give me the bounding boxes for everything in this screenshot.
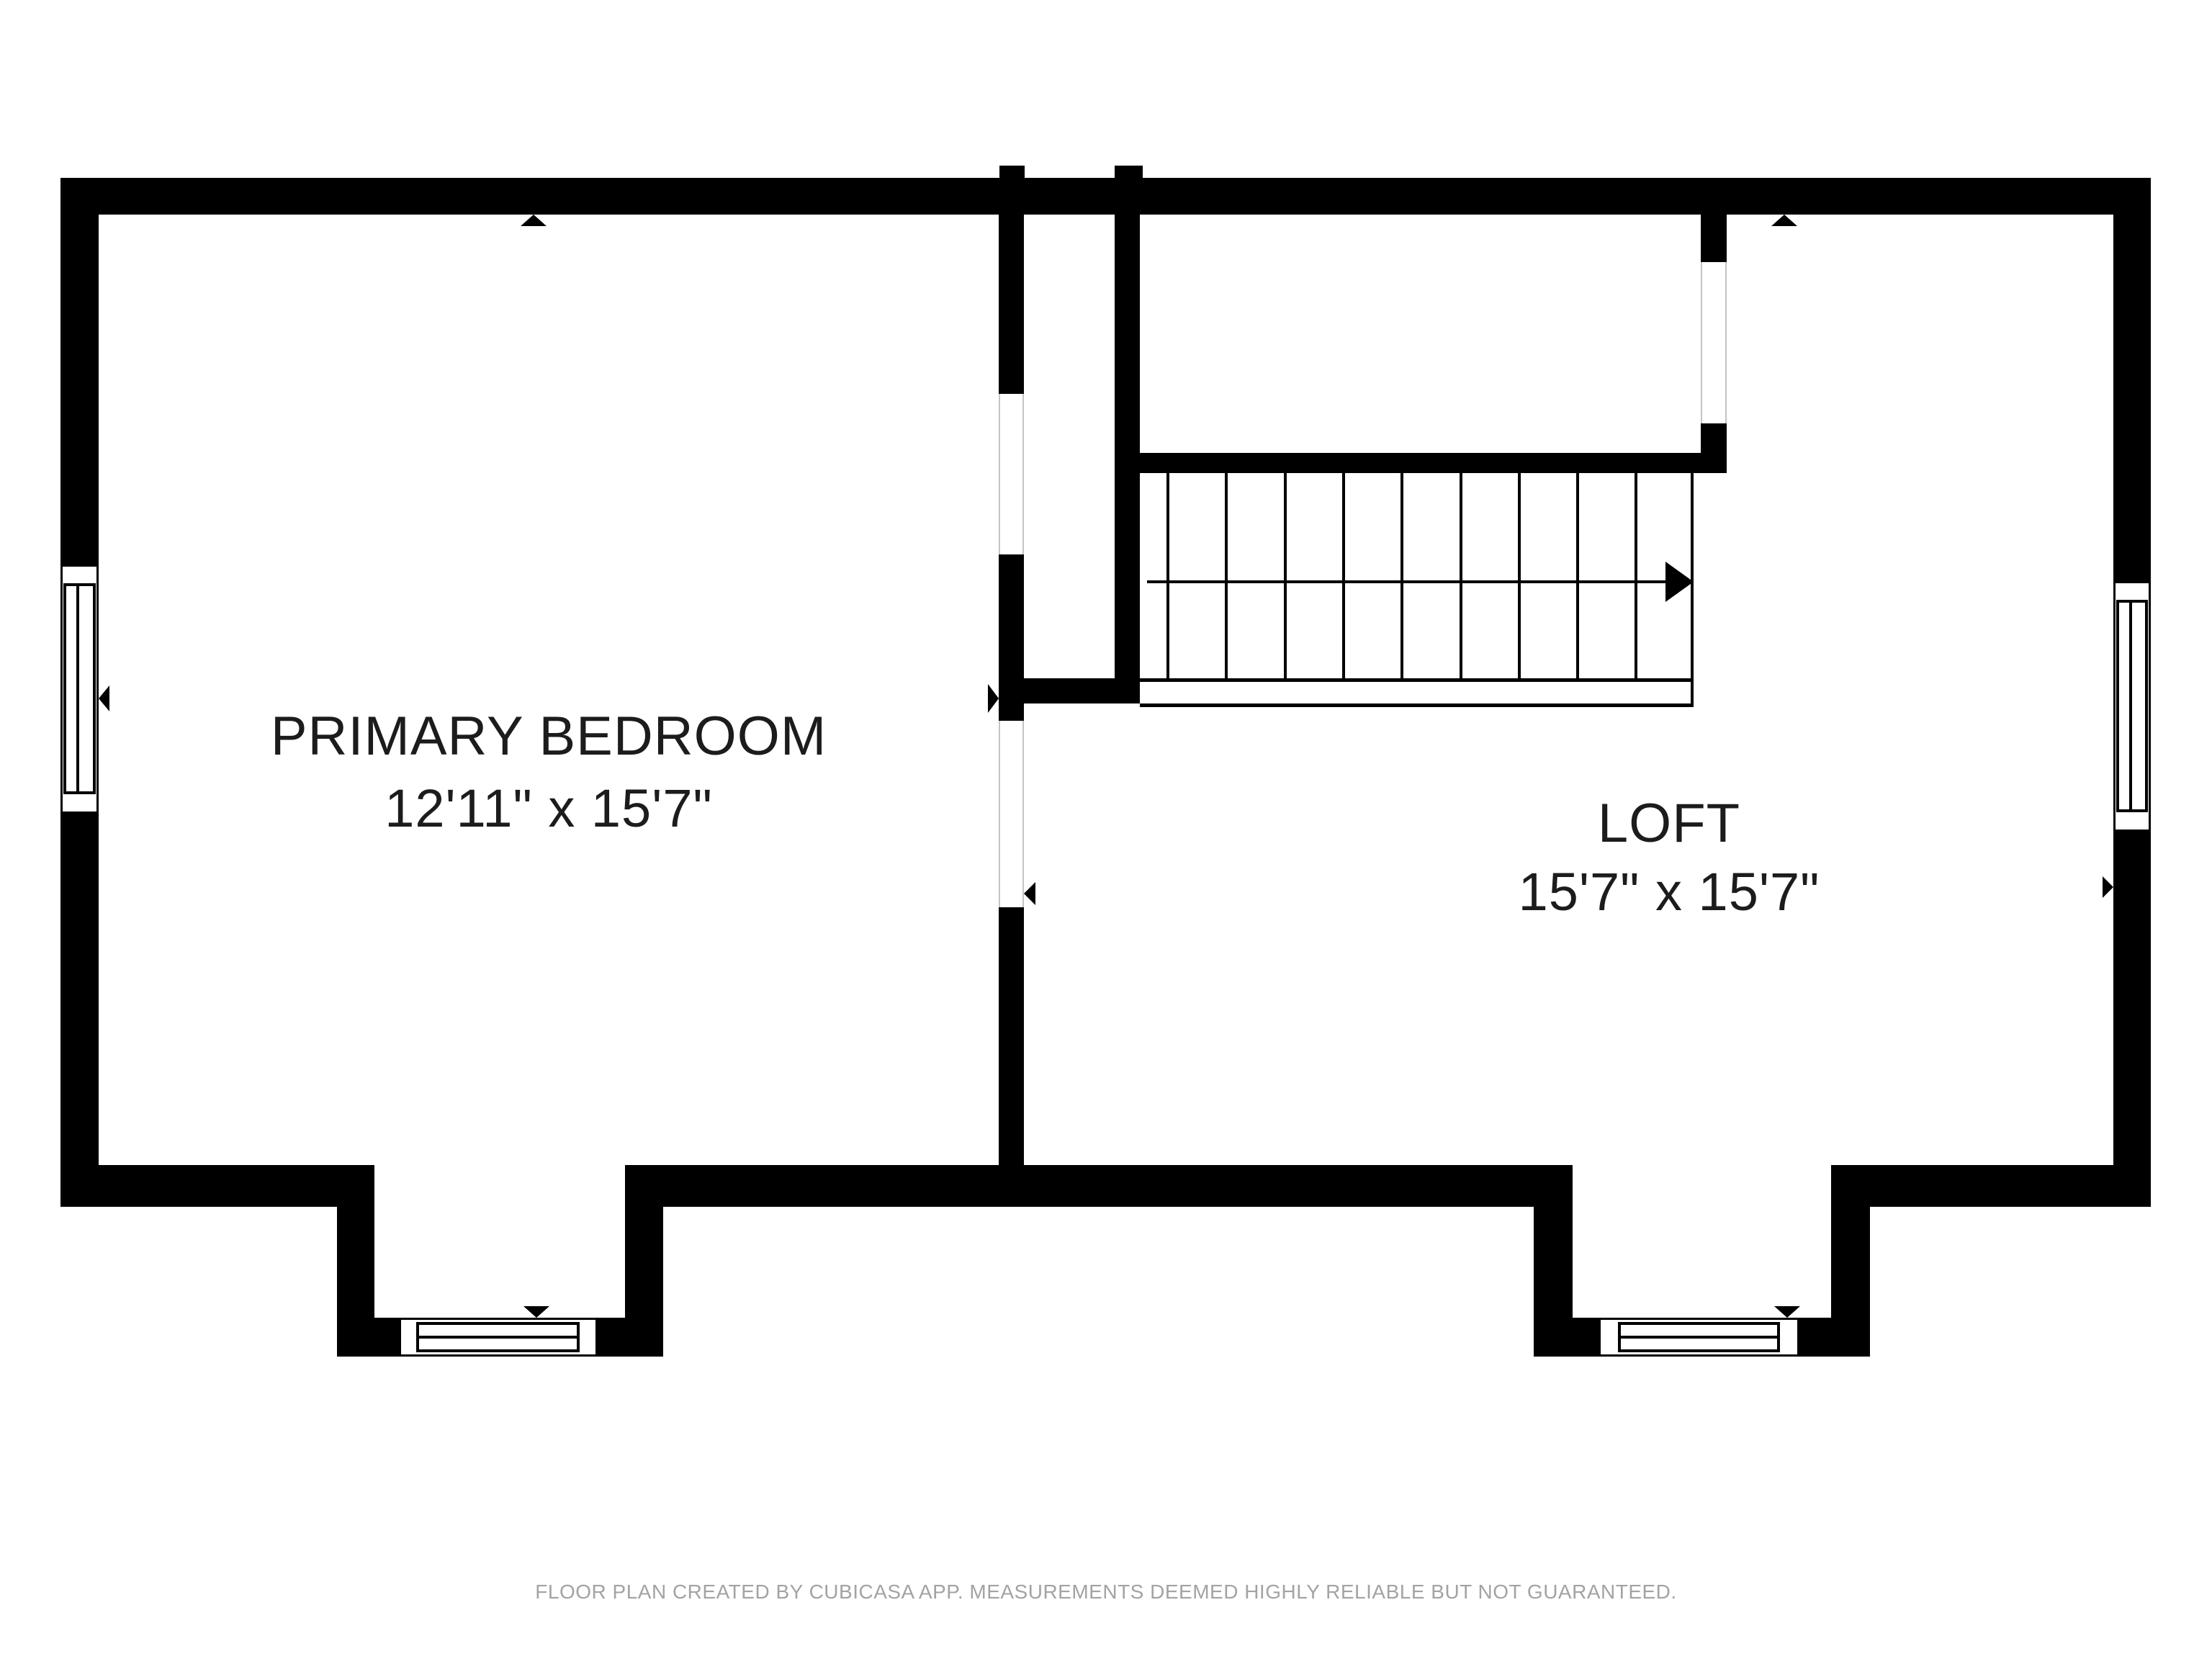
divider-wall-segment-c [999,907,1024,1207]
marker-up-icon [1771,215,1797,226]
marker-left-icon [1024,882,1035,905]
stairwell-wall-right-a [1701,215,1727,262]
bumpout2-wall-bottom-b [1797,1318,1831,1357]
bumpout1-wall-bottom-b [595,1318,625,1357]
bumpout2-wall-bottom-a [1573,1318,1601,1357]
bumpout1-wall-right [625,1207,663,1357]
wall-stub-divider-top [999,166,1025,215]
window-edge [401,1354,595,1357]
marker-left-icon [99,685,109,711]
stair-tread [1401,473,1403,678]
corridor-bottom-wall [1024,678,1115,703]
stair-tread [1576,473,1579,678]
stair-opening-outline [1701,262,1702,423]
window-glass-line [416,1336,580,1339]
stair-tread [1342,473,1345,678]
stair-tread [1225,473,1228,678]
floor-plan: PRIMARY BEDROOM 12'11" x 15'7" LOFT 15'7… [0,0,2212,1659]
bumpout1-wall-left [337,1207,374,1357]
door-opening-outline [999,394,1000,554]
wall-bottom-middle [625,1165,1573,1207]
bumpout1-wall-bottom-a [374,1318,401,1357]
stair-direction-arrow-head-icon [1665,562,1694,602]
room-dimensions-label: 15'7" x 15'7" [1143,866,2195,919]
stair-tread [1284,473,1287,678]
marker-right-icon [988,684,999,713]
wall-stub-stairwell-top [1115,166,1143,215]
door-opening-outline [1022,721,1024,907]
window-edge [60,567,63,811]
window-edge [1601,1318,1797,1320]
room-name-label: PRIMARY BEDROOM [99,709,999,764]
window-edge [401,1318,595,1320]
stairs [1140,453,1727,707]
divider-wall-segment-a [999,215,1024,394]
window-right [2113,583,2151,829]
stair-tread [1460,473,1462,678]
stairwell-wall-left [1115,215,1140,703]
stair-opening-outline [1725,262,1727,423]
window-glass-line [1618,1336,1780,1339]
room-dimensions-label: 12'11" x 15'7" [99,782,999,835]
marker-down-icon [523,1306,549,1318]
wall-top [60,178,2151,215]
stair-tread [1518,473,1521,678]
stair-tread [1166,473,1169,678]
door-opening-outline [999,721,1000,907]
window-edge [2149,583,2151,829]
stair-direction-arrow-line [1147,580,1665,583]
door-opening-outline [1022,394,1024,554]
bumpout2-wall-right [1831,1207,1870,1357]
stair-tread [1635,473,1637,678]
window-edge [1601,1354,1797,1357]
stairwell-wall-right-b [1701,423,1727,453]
window-frame [63,583,96,794]
stair-bottom-edge [1140,703,1694,707]
stair-top-wall [1140,453,1727,473]
window-glass-line [2129,600,2132,812]
window-bottom-left [401,1318,595,1357]
window-frame [2116,600,2148,812]
wall-bottom-right [1831,1165,2151,1207]
footer-disclaimer: FLOOR PLAN CREATED BY CUBICASA APP. MEAS… [0,1582,2212,1602]
bumpout2-wall-left [1534,1207,1573,1357]
marker-up-icon [521,215,547,226]
marker-down-icon [1774,1306,1800,1318]
divider-wall-segment-b [999,554,1024,721]
stair-bottom-edge [1140,678,1694,682]
window-left [60,567,99,811]
wall-bottom-left [60,1165,374,1207]
window-edge [2113,583,2116,829]
room-name-label: LOFT [1143,796,2195,851]
window-glass-line [76,583,79,794]
window-bottom-right [1601,1318,1797,1357]
